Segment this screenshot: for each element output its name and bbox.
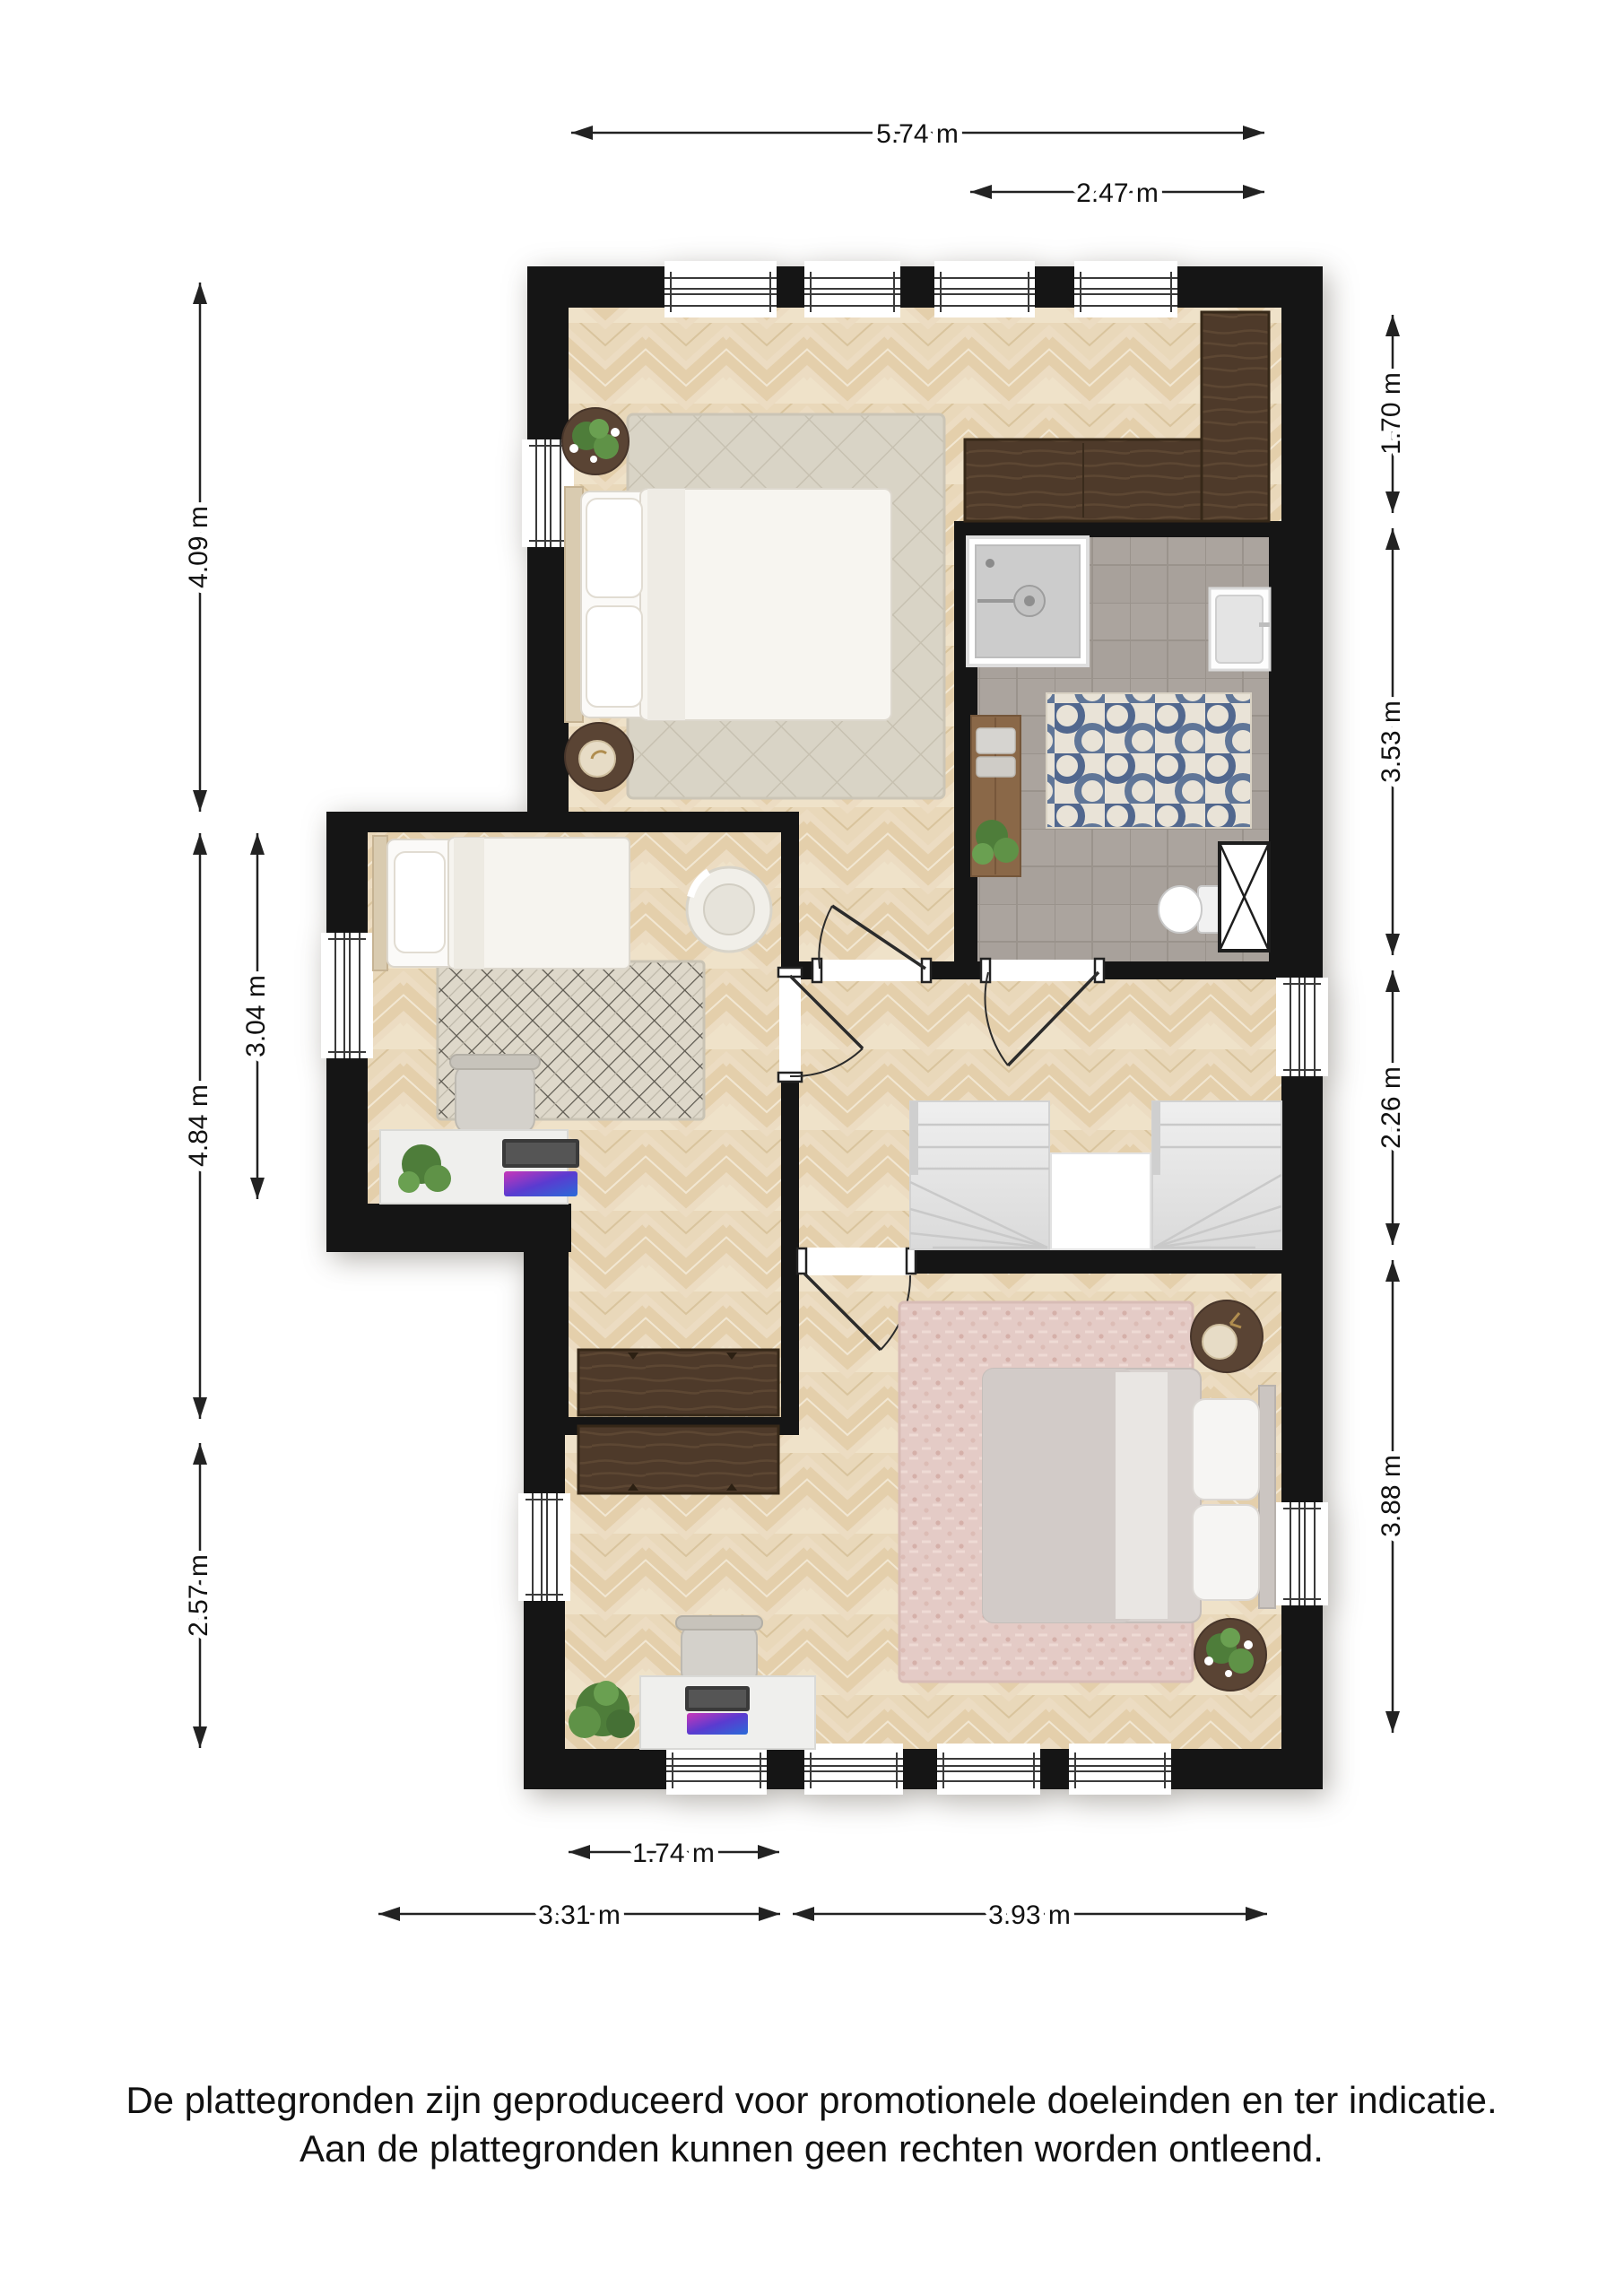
towel bbox=[977, 728, 1015, 753]
window-top-2 bbox=[804, 261, 900, 317]
washbasin bbox=[1210, 588, 1270, 670]
svg-text:2.57 m: 2.57 m bbox=[184, 1554, 213, 1637]
footer-line-2: Aan de plattegronden kunnen geen rechten… bbox=[300, 2127, 1324, 2170]
wall-step-southwest bbox=[326, 1204, 571, 1252]
window-bottom-3 bbox=[937, 1744, 1040, 1795]
dim-bedroom-top-depth: 4.09 m bbox=[184, 283, 213, 812]
wall-bathroom-top bbox=[954, 521, 1269, 537]
pillow bbox=[586, 606, 642, 707]
desk bbox=[380, 1130, 579, 1204]
dim-bottom-left-depth: 2.57 m bbox=[184, 1443, 213, 1748]
laptop bbox=[502, 1139, 579, 1196]
window-bottom-2 bbox=[804, 1744, 903, 1795]
towel bbox=[977, 757, 1015, 777]
floor-plan-svg: 5.74 m 2.47 m 4.09 m 4.84 m 2.57 m 3.04 … bbox=[0, 0, 1624, 2296]
stair-flight-left bbox=[910, 1101, 1049, 1249]
stair-void bbox=[1051, 1153, 1151, 1249]
dim-bathroom-depth: 3.53 m bbox=[1376, 528, 1406, 955]
svg-text:4.84 m: 4.84 m bbox=[184, 1084, 213, 1167]
dim-bottom-right-width: 3.93 m bbox=[793, 1900, 1267, 1930]
bath-mat bbox=[1046, 693, 1251, 828]
dim-left-extension-depth: 4.84 m bbox=[184, 833, 213, 1419]
pillow bbox=[586, 499, 642, 597]
laptop bbox=[685, 1686, 750, 1735]
toilet bbox=[1159, 886, 1221, 933]
pillow bbox=[1193, 1399, 1259, 1500]
svg-text:3.04 m: 3.04 m bbox=[241, 975, 271, 1057]
window-bottom-4 bbox=[1069, 1744, 1171, 1795]
dim-landing-depth: 2.26 m bbox=[1376, 970, 1406, 1245]
svg-text:5.74 m: 5.74 m bbox=[876, 119, 959, 149]
dim-wardrobe-nook-depth: 1.70 m bbox=[1376, 315, 1406, 513]
single-bed bbox=[373, 836, 630, 970]
window-bottom-1 bbox=[666, 1744, 767, 1795]
svg-text:3.93 m: 3.93 m bbox=[988, 1900, 1071, 1930]
dim-top-width: 5.74 m bbox=[571, 119, 1264, 149]
svg-text:3.88 m: 3.88 m bbox=[1376, 1455, 1406, 1537]
bench-with-towels bbox=[971, 716, 1020, 876]
double-bed bbox=[565, 487, 891, 722]
window-top-4 bbox=[1074, 261, 1177, 317]
dim-bedroom-bottom-depth: 3.88 m bbox=[1376, 1260, 1406, 1733]
floor-plan bbox=[321, 261, 1328, 1795]
dresser bbox=[578, 1350, 778, 1415]
double-bed bbox=[983, 1369, 1275, 1622]
armchair bbox=[687, 867, 771, 952]
pillow bbox=[1193, 1505, 1259, 1600]
footer-disclaimer: De plattegronden zijn geproduceerd voor … bbox=[126, 2079, 1497, 2170]
svg-text:3.31 m: 3.31 m bbox=[538, 1900, 621, 1930]
floor-plan-page: 5.74 m 2.47 m 4.09 m 4.84 m 2.57 m 3.04 … bbox=[0, 0, 1624, 2296]
pillow bbox=[395, 852, 445, 952]
side-table-lamp bbox=[1191, 1300, 1263, 1372]
desk-chair bbox=[450, 1055, 540, 1134]
footer-line-1: De plattegronden zijn geproduceerd voor … bbox=[126, 2079, 1497, 2121]
wall-bedroom-middle-north bbox=[326, 812, 799, 832]
desk bbox=[640, 1676, 815, 1749]
side-table-lamp bbox=[565, 723, 633, 791]
dim-bottom-left-width: 3.31 m bbox=[378, 1900, 780, 1930]
window-left-middle bbox=[321, 933, 373, 1058]
svg-text:3.53 m: 3.53 m bbox=[1376, 700, 1406, 783]
svg-text:1.70 m: 1.70 m bbox=[1376, 372, 1406, 455]
window-right-landing bbox=[1276, 978, 1328, 1076]
window-right-bedroom bbox=[1276, 1502, 1328, 1605]
dim-bedroom-middle-depth: 3.04 m bbox=[241, 833, 271, 1199]
side-table-plant bbox=[1194, 1619, 1266, 1691]
svg-text:4.09 m: 4.09 m bbox=[184, 506, 213, 588]
svg-text:2.26 m: 2.26 m bbox=[1376, 1066, 1406, 1149]
stair-flight-right bbox=[1152, 1101, 1281, 1249]
svg-text:1.74 m: 1.74 m bbox=[632, 1839, 715, 1868]
dresser bbox=[578, 1426, 778, 1493]
dim-left-arm-width: 1.74 m bbox=[569, 1839, 779, 1868]
shower bbox=[968, 537, 1088, 665]
side-table-plant bbox=[562, 408, 629, 474]
desk-chair bbox=[676, 1616, 762, 1684]
svg-text:2.47 m: 2.47 m bbox=[1076, 178, 1159, 208]
wall-landing-west bbox=[781, 814, 799, 1435]
window-top-3 bbox=[934, 261, 1035, 317]
shaft bbox=[1220, 843, 1269, 951]
dim-bathroom-width: 2.47 m bbox=[970, 178, 1264, 208]
window-left-bottom bbox=[518, 1493, 570, 1601]
window-top-1 bbox=[664, 261, 777, 317]
